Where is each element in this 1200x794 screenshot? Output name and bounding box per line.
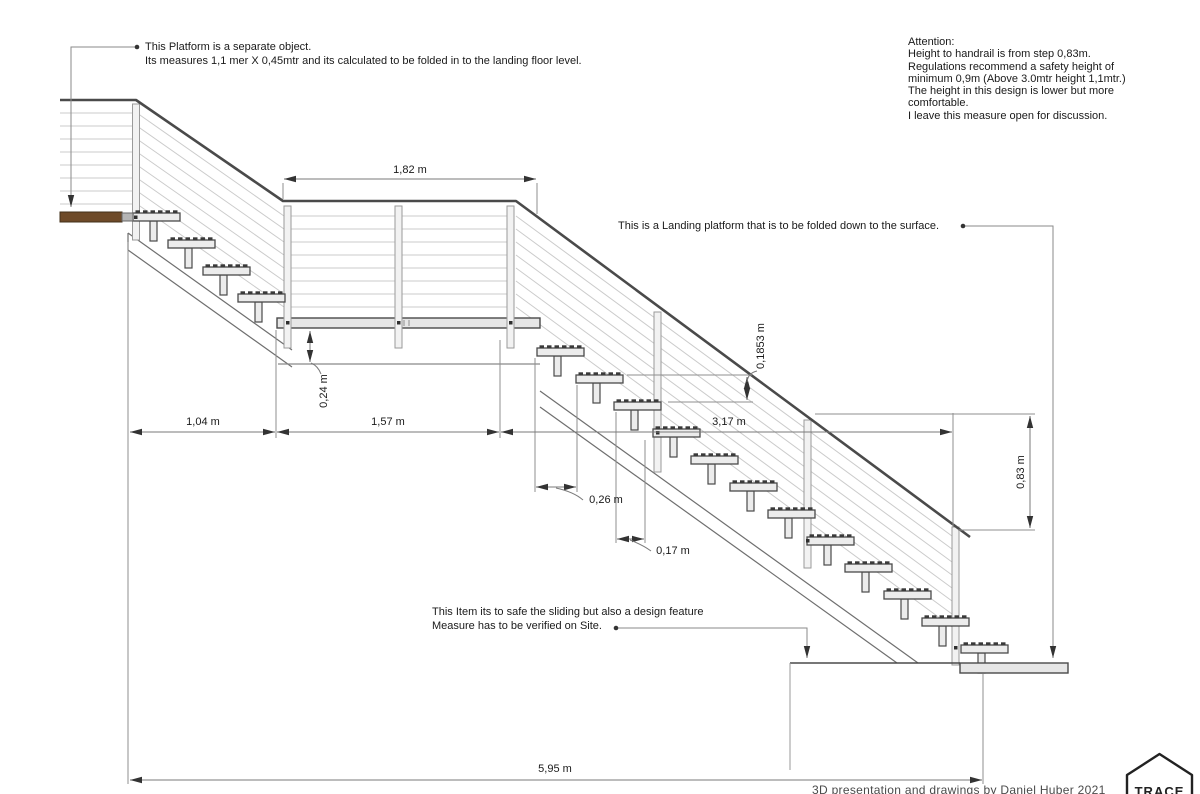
attention-note: Attention: Height to handrail is from st… — [908, 36, 1126, 122]
stair-step — [922, 615, 969, 646]
technical-drawing-page: TRACE This Platform is a separate object… — [0, 0, 1200, 794]
lower-post-2 — [804, 420, 811, 568]
dim-label-104: 1,04 m — [186, 416, 220, 428]
stair-step — [884, 588, 931, 619]
wood-platform — [60, 212, 122, 222]
stair-step — [537, 345, 584, 376]
bottom-post — [952, 527, 959, 665]
leader-platform-note — [71, 47, 137, 203]
landing-post-3 — [507, 206, 514, 348]
attention-line: Regulations recommend a safety height of — [908, 61, 1126, 73]
bottom-landing-platform — [960, 663, 1068, 673]
bolt — [134, 216, 138, 220]
slide-note-line1: This Item its to safe the sliding but al… — [432, 605, 703, 619]
dim-label-024: 0,24 m — [318, 374, 330, 408]
dim-label-595: 5,95 m — [538, 763, 572, 775]
credit-text: 3D presentation and drawings by Daniel H… — [812, 783, 1106, 794]
slide-note-line2: Measure has to be verified on Site. — [432, 619, 703, 633]
stair-step — [133, 210, 180, 241]
dim-arc-017 — [630, 540, 651, 551]
attention-line: Height to handrail is from step 0,83m. — [908, 48, 1126, 60]
stair-step — [691, 453, 738, 484]
stair-step — [576, 372, 623, 403]
leader-dot-platform-note — [135, 45, 140, 50]
platform-note: This Platform is a separate object. Its … — [145, 40, 582, 68]
upper-flight-cables — [137, 113, 284, 307]
platform-note-line2: Its measures 1,1 mer X 0,45mtr and its c… — [145, 54, 582, 68]
bolt — [806, 539, 810, 543]
landing-post-2 — [395, 206, 402, 348]
stair-step — [203, 264, 250, 295]
landing-post-1 — [284, 206, 291, 348]
railing-posts — [133, 104, 960, 665]
stair-step — [730, 480, 777, 511]
attention-line: comfortable. — [908, 97, 1126, 109]
dim-label-017: 0,17 m — [656, 545, 690, 557]
stair-step — [845, 561, 892, 592]
dim-label-01853: 0,1853 m — [755, 323, 767, 369]
dim-arc-024 — [311, 363, 321, 374]
lower-post-1 — [654, 312, 661, 472]
slide-note: This Item its to safe the sliding but al… — [432, 605, 703, 633]
platform-bracket — [122, 213, 133, 221]
leader-landing-note — [963, 226, 1053, 645]
attention-line: minimum 0,9m (Above 3.0mtr height 1,1mtr… — [908, 73, 1126, 85]
dimension-lines — [130, 179, 1030, 780]
trace-logo-text: TRACE — [1135, 784, 1185, 794]
dim-label-026: 0,26 m — [589, 494, 623, 506]
bolt — [286, 321, 290, 325]
bolt — [509, 321, 513, 325]
attention-line: I leave this measure open for discussion… — [908, 110, 1126, 122]
leader-dot-landing-note — [961, 224, 966, 229]
dim-arc-026 — [556, 488, 583, 500]
stair-step — [168, 237, 215, 268]
separate-platform — [60, 212, 133, 222]
railing-cables — [60, 113, 952, 627]
platform-note-line1: This Platform is a separate object. — [145, 40, 582, 54]
dim-label-157: 1,57 m — [371, 416, 405, 428]
bolt — [397, 321, 401, 325]
attention-line: The height in this design is lower but m… — [908, 85, 1126, 97]
bolt — [954, 646, 958, 650]
dim-label-317: 3,17 m — [712, 416, 746, 428]
dim-label-182: 1,82 m — [393, 164, 427, 176]
attention-line: Attention: — [908, 36, 1126, 48]
landing-note: This is a Landing platform that is to be… — [618, 219, 939, 233]
dim-label-083: 0,83 m — [1015, 455, 1027, 489]
trace-logo: TRACE — [1127, 754, 1192, 794]
